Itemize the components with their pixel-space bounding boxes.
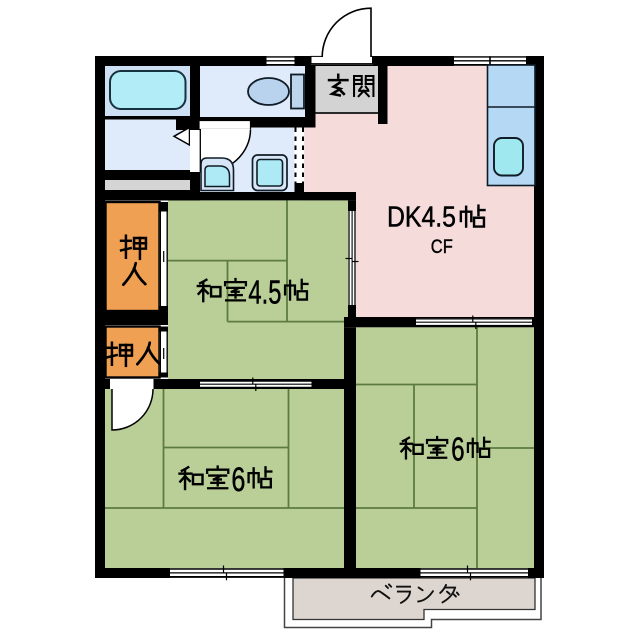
svg-text:4.5: 4.5 (248, 274, 281, 311)
svg-text:DK4.5: DK4.5 (387, 202, 456, 234)
svg-text:6: 6 (231, 461, 245, 499)
svg-text:6: 6 (451, 431, 465, 468)
svg-text:CF: CF (431, 236, 453, 258)
